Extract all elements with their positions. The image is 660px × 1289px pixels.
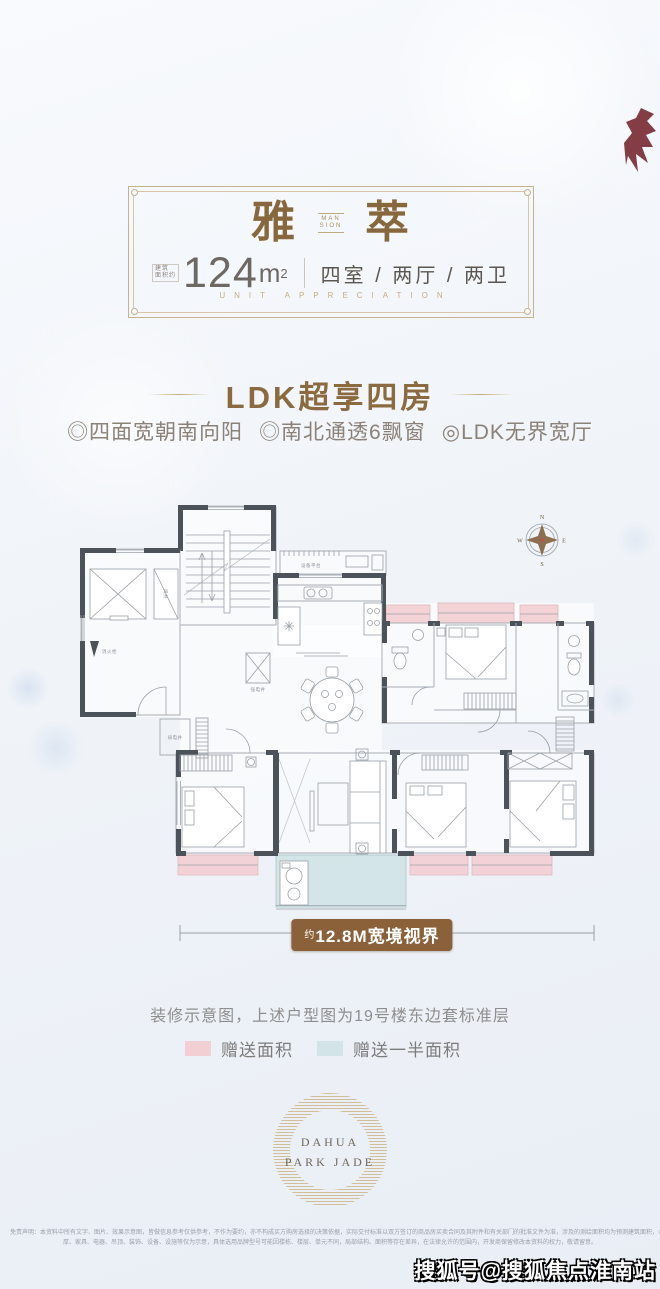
sohu-text-watermark: 搜狐号@搜狐焦点淮南站 <box>415 1255 656 1285</box>
unit-title-left: 雅 <box>251 201 297 245</box>
compass-icon: N E S W <box>517 515 566 568</box>
badge-subtitle: UNIT APPRECIATION <box>129 291 533 300</box>
selling-point: ◎南北通透6飘窗 <box>259 416 426 446</box>
emblem-rule <box>318 232 344 233</box>
unit-title-right: 萃 <box>365 201 411 245</box>
svg-text:W: W <box>517 539 523 545</box>
heading-rule-left <box>148 394 210 395</box>
divider <box>304 258 305 288</box>
legend-swatch-half-gift <box>317 1041 343 1056</box>
fire-hydrant-label: 消火栓 <box>102 648 117 655</box>
plan-note: 装修示意图，上述户型图为19号楼东边套标准层 <box>0 1002 660 1026</box>
heading-rule-right <box>450 394 512 395</box>
sofa <box>350 749 386 854</box>
area-value: 124 <box>183 253 258 293</box>
logo-ring <box>282 1102 379 1199</box>
sohu-logo-watermark <box>624 106 658 178</box>
elevator <box>90 569 146 620</box>
area-prefix-line2: 面积约 <box>155 273 176 280</box>
corner-ornament <box>524 189 531 196</box>
width-dimension-banner: 约12.8M宽境视界 <box>291 919 452 951</box>
area-unit: m <box>259 258 281 289</box>
dimension-label: 12.8M宽境视界 <box>315 927 439 946</box>
emblem-top-text: MAN <box>321 216 340 223</box>
weak-elec-shaft-label: 弱电井 <box>168 734 183 741</box>
brand-logo: DAHUA PARK JADE <box>265 1085 395 1215</box>
svg-text:E: E <box>562 539 566 545</box>
corner-ornament <box>131 308 138 315</box>
selling-point: ◎四面宽朝南向阳 <box>67 416 243 446</box>
selling-point: ◎LDK无界宽厅 <box>442 416 593 446</box>
logo-line1: DAHUA <box>301 1135 359 1149</box>
svg-text:S: S <box>540 562 543 568</box>
bedroom-southeast <box>508 731 576 847</box>
selling-points: ◎四面宽朝南向阳 ◎南北通透6飘窗 ◎LDK无界宽厅 <box>0 416 660 446</box>
maison-emblem: MAN SION <box>311 211 351 235</box>
area-prefix-line1: 建筑 <box>155 266 176 273</box>
svg-text:N: N <box>540 515 545 521</box>
legend-label-half-gift: 赠送一半面积 <box>353 1036 461 1061</box>
floor-plan: 风井 消火栓 设备平台 <box>80 495 600 965</box>
logo-line2: PARK JADE <box>285 1155 375 1169</box>
area-exponent: 2 <box>280 266 287 281</box>
corner-ornament <box>524 308 531 315</box>
disclaimer-line2: 厚、家具、电器、吊顶、装饰、设备、设施等仅为示意，具体选用品牌型号可能因楼栋、楼… <box>10 1238 650 1248</box>
wind-shaft-label: 风井 <box>162 589 169 599</box>
balcony <box>276 855 406 909</box>
legend: 赠送面积 赠送一半面积 <box>0 1036 660 1061</box>
header-badge: 雅 MAN SION 萃 建筑 面积约 124 m 2 四室 / 两厅 / 两卫… <box>128 186 534 318</box>
legend-swatch-gift <box>185 1041 211 1056</box>
disclaimer: 免责声明：本资料中所有文字、图片、效果示意图，皆做信息参考仅供参考，不作为要约，… <box>10 1228 650 1248</box>
emblem-bottom-text: SION <box>320 223 343 230</box>
section-heading: LDK超享四房 <box>0 372 660 417</box>
section-title: LDK超享四房 <box>226 372 435 417</box>
unit-info: 建筑 面积约 124 m 2 四室 / 两厅 / 两卫 <box>129 253 533 293</box>
emblem-rule <box>318 213 344 214</box>
legend-label-gift: 赠送面积 <box>221 1036 293 1061</box>
dimension-prefix: 约 <box>304 930 314 941</box>
strong-elec-shaft-label: 强电井 <box>251 686 266 693</box>
stove <box>364 603 382 635</box>
unit-title: 雅 MAN SION 萃 <box>129 201 533 245</box>
equipment-platform-label: 设备平台 <box>301 562 321 569</box>
page: { "badge": { "title_left": "雅", "emblem_… <box>0 0 660 1289</box>
corner-ornament <box>131 189 138 196</box>
fridge <box>278 607 300 645</box>
wind-shaft: 风井 <box>154 569 178 619</box>
washing-machine <box>280 861 308 905</box>
rooms-text: 四室 / 两厅 / 两卫 <box>321 259 510 288</box>
area-prefix: 建筑 面积约 <box>152 264 179 282</box>
dining-table <box>310 678 354 722</box>
disclaimer-line1: 免责声明：本资料中所有文字、图片、效果示意图，皆做信息参考仅供参考，不作为要约，… <box>10 1228 650 1238</box>
